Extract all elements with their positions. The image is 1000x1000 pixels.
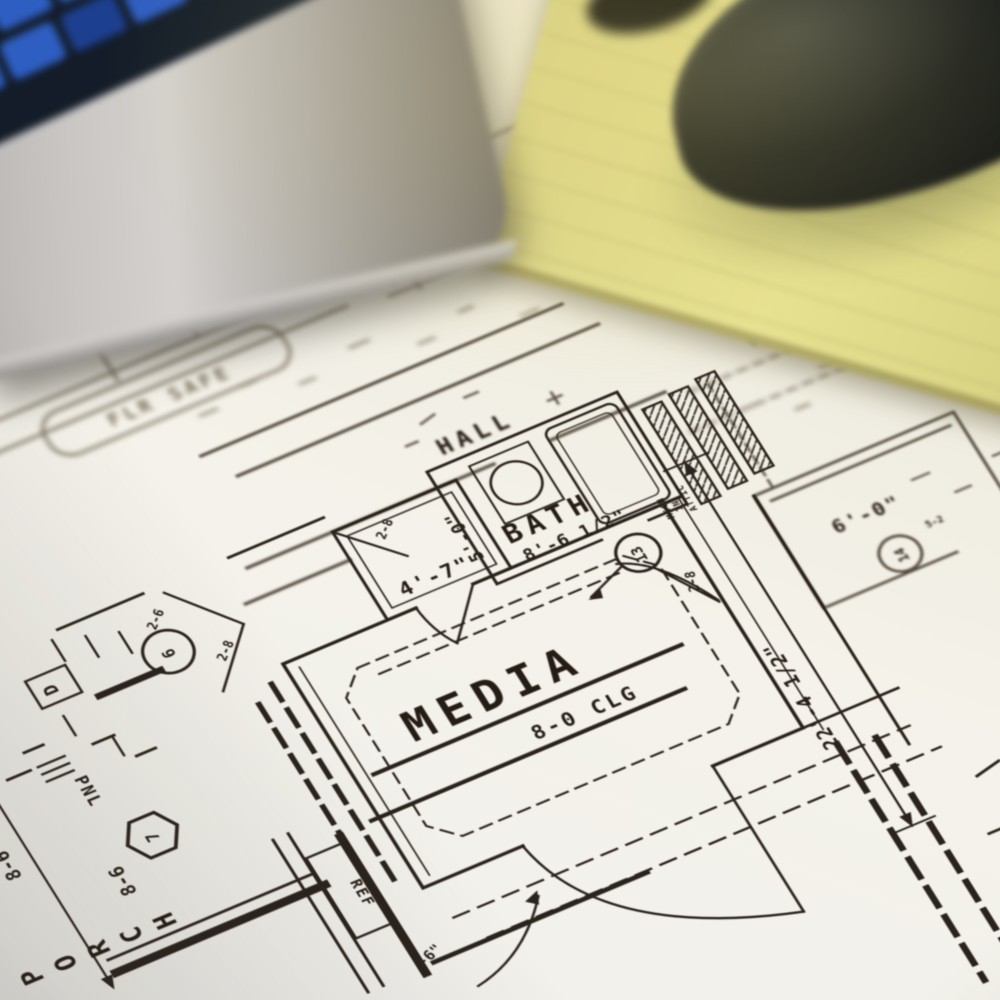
photo-of-blueprints-desk: FLR SAFE HALL 6'-0" 14 5-2 MEDIA 8-0 CLG… bbox=[0, 0, 1000, 1000]
pnl-label: PNL bbox=[70, 772, 108, 809]
dim-2-8-porch: 2-8 bbox=[214, 639, 238, 663]
dim-6-0: 6'-0" bbox=[827, 491, 905, 538]
closet-door-swing bbox=[416, 584, 499, 650]
porch-label: P O R C H bbox=[13, 907, 184, 989]
pnl-leader-marks bbox=[38, 756, 74, 782]
svg-text:P: P bbox=[14, 964, 52, 990]
roof-thick-dashed bbox=[837, 730, 1000, 988]
marker-13-label: 13 bbox=[627, 544, 652, 565]
dim-2-6: 2-6 bbox=[144, 607, 168, 632]
marker-14-label: 14 bbox=[892, 545, 914, 564]
leader-arrowhead bbox=[585, 587, 606, 603]
dim-2-8-closet: 2-8 bbox=[374, 517, 398, 541]
keyboard-key bbox=[59, 0, 128, 53]
porch-thick-dashed bbox=[252, 684, 402, 900]
marker-6-label: 6 bbox=[157, 646, 180, 661]
dim-8-6-a: 8-6 bbox=[0, 847, 27, 883]
keyboard-key bbox=[120, 0, 189, 24]
dim-5-0: 5'-0" bbox=[440, 509, 490, 565]
dim-8-6-b: 8-6 bbox=[105, 863, 142, 899]
marker-7-label: 7 bbox=[141, 829, 164, 844]
large-door-swing bbox=[523, 766, 804, 992]
svg-text:O: O bbox=[47, 950, 85, 976]
dim-4-7: 4'-7" bbox=[394, 552, 476, 601]
laptop-keyboard bbox=[0, 0, 363, 177]
keyboard-key bbox=[0, 20, 68, 81]
dim-2-8-door13: 2-8 bbox=[682, 570, 703, 593]
marker-D-label: D bbox=[38, 681, 64, 698]
dim-5-2: 5-2 bbox=[924, 514, 947, 530]
arc-arrowhead bbox=[522, 890, 545, 908]
hatched-wall-strips bbox=[638, 371, 777, 504]
